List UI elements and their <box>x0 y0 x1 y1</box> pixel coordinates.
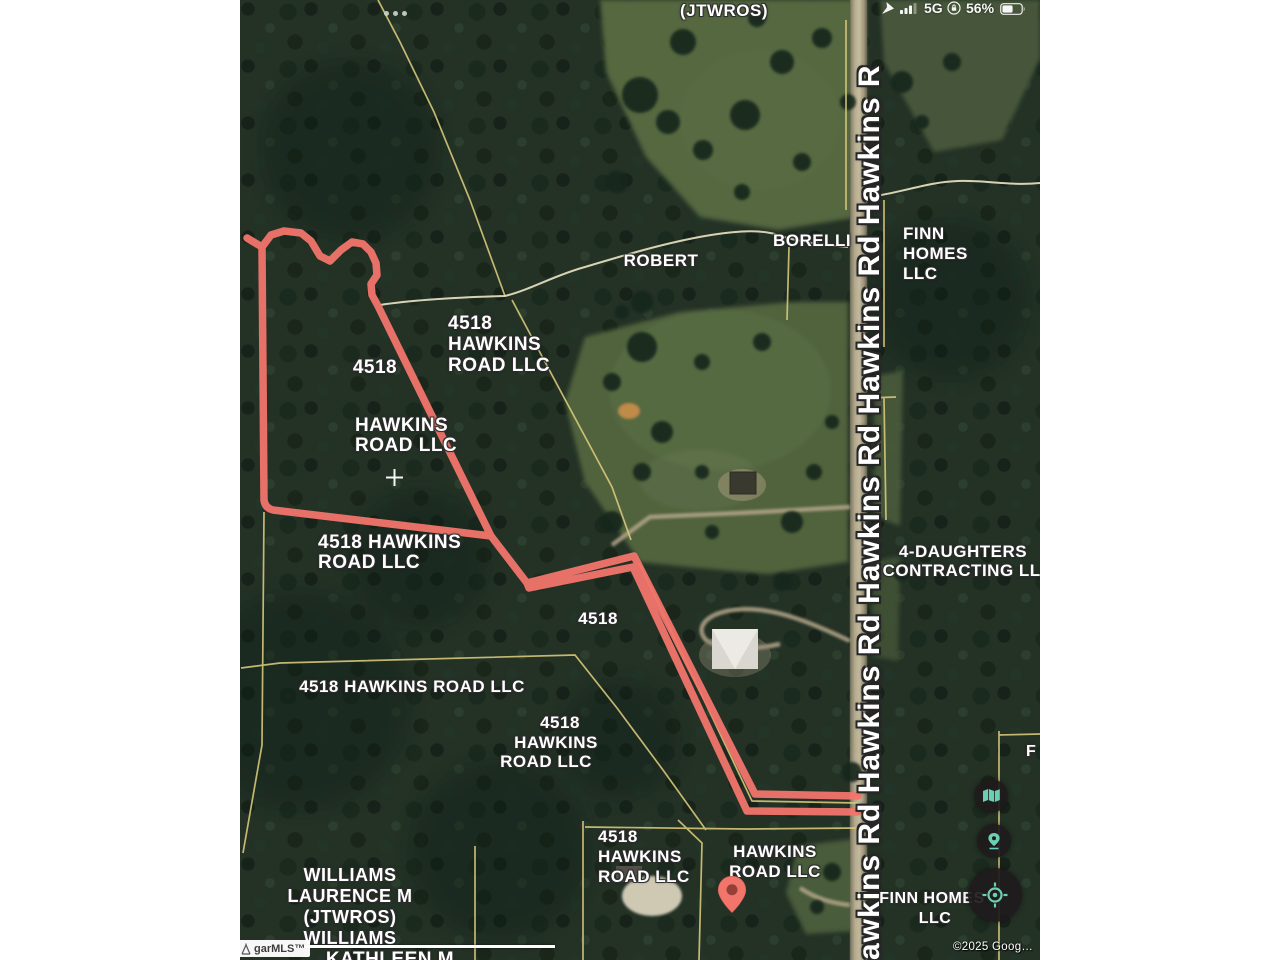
parcel-label-daughters-1: 4-DAUGHTERS <box>899 542 1027 562</box>
map-copyright: ©2025 Goog… <box>953 941 1033 953</box>
parcel-label-williams-2: LAURENCE M <box>288 886 413 907</box>
locate-button[interactable] <box>968 868 1022 922</box>
map-icon <box>982 787 1001 805</box>
dropped-pin-button[interactable] <box>977 824 1011 858</box>
parcel-label-kathleen: KATHLEEN M <box>326 949 454 960</box>
plus-crosshair-icon <box>386 469 403 486</box>
parcel-label-borelli: BORELLI <box>773 231 851 251</box>
parcel-label-b: 4518 <box>353 357 397 379</box>
map-view-button[interactable] <box>974 779 1008 813</box>
mls-logo-icon <box>241 943 251 955</box>
parcel-label-h-3: ROAD LLC <box>598 867 690 887</box>
scale-bar <box>285 945 555 948</box>
parcel-label-g-2: HAWKINS <box>514 733 598 753</box>
parcel-label-g-1: 4518 <box>540 713 580 733</box>
parcel-label-finn-top-3: LLC <box>903 264 938 284</box>
parcel-label-finn-top-1: FINN <box>903 224 945 244</box>
parcel-label-williams-1: WILLIAMS <box>304 865 397 886</box>
parcel-label-jtwros: (JTWROS) <box>680 1 768 21</box>
parcel-label-c-2: ROAD LLC <box>355 435 457 457</box>
parcel-label-daughters-2: CONTRACTING LLC <box>883 561 1040 581</box>
parcel-label-robert: ROBERT <box>624 251 699 271</box>
map-canvas[interactable]: awkins Rd Hawkins Rd Hawkins Rd Hawkins … <box>240 0 1040 960</box>
parcel-label-d-2: ROAD LLC <box>318 552 420 574</box>
screenshot-stage: awkins Rd Hawkins Rd Hawkins Rd Hawkins … <box>0 0 1280 960</box>
parcel-label-c-1: HAWKINS <box>355 415 448 437</box>
parcel-label-a-1: 4518 <box>448 313 492 335</box>
map-pin[interactable] <box>717 876 747 914</box>
mls-watermark-text: garMLS™ <box>254 943 305 955</box>
gps-locate-icon <box>982 882 1008 908</box>
parcel-label-f: 4518 HAWKINS ROAD LLC <box>299 677 525 697</box>
parcel-label-d-1: 4518 HAWKINS <box>318 532 461 554</box>
parcel-label-h-2: HAWKINS <box>598 847 682 867</box>
dirt-patch <box>618 403 640 419</box>
parcel-label-h-1: 4518 <box>598 827 638 847</box>
parcel-label-a-3: ROAD LLC <box>448 355 550 377</box>
road-name-label: awkins Rd Hawkins Rd Hawkins Rd Hawkins … <box>853 0 893 960</box>
parcel-label-e: 4518 <box>578 609 618 629</box>
mls-watermark: garMLS™ <box>240 940 310 957</box>
satellite-scene <box>240 0 1040 960</box>
parcel-label-a-2: HAWKINS <box>448 334 541 356</box>
parcel-label-finn-bottom-2: LLC <box>919 910 952 928</box>
location-pin-icon <box>985 832 1003 850</box>
parcel-label-i-1: HAWKINS <box>733 842 817 862</box>
parcel-label-g-3: ROAD LLC <box>500 752 592 772</box>
parcel-label-finn-top-2: HOMES <box>903 244 968 264</box>
parcel-label-f-clipped: F <box>1026 743 1036 761</box>
parcel-label-williams-3: (JTWROS) <box>304 907 397 928</box>
